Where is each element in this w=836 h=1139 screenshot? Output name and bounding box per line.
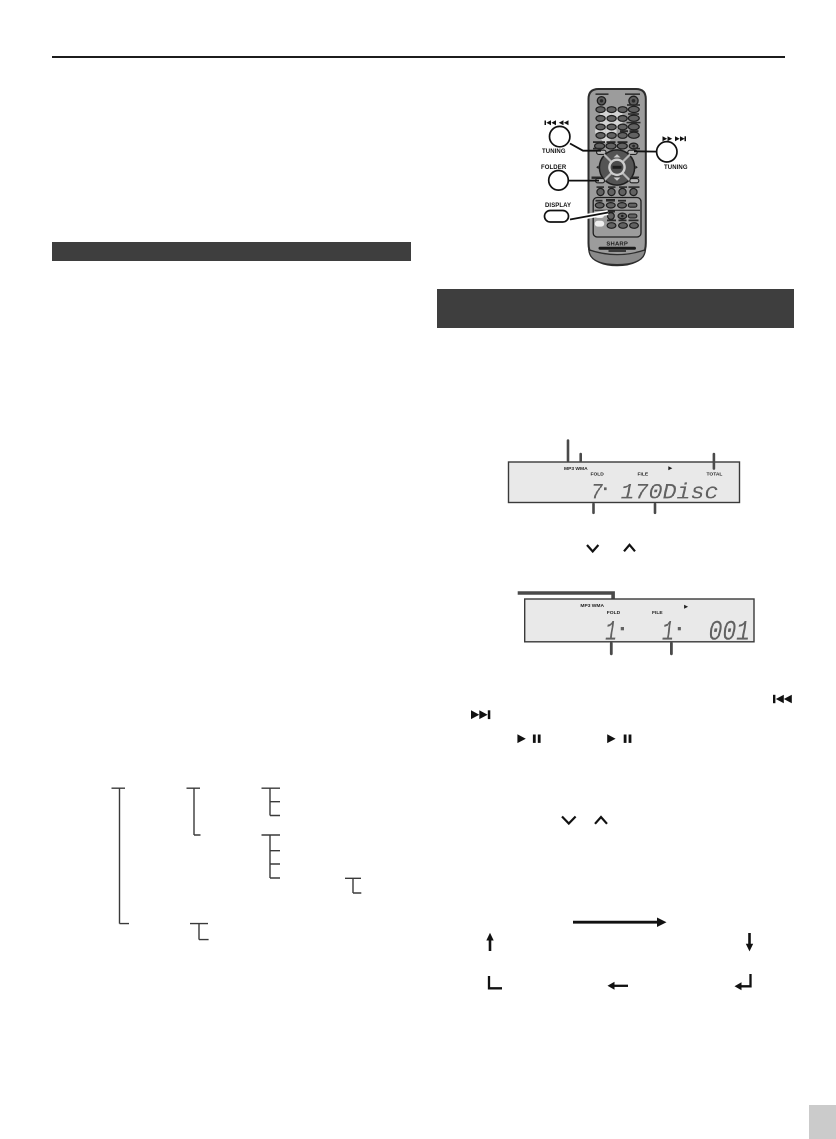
svg-text:SHARP: SHARP — [606, 242, 628, 248]
svg-text:FILE: FILE — [638, 471, 649, 477]
svg-text:7: 7 — [591, 480, 604, 505]
svg-text:MP3 WMA: MP3 WMA — [564, 466, 588, 472]
svg-text:DISPLAY: DISPLAY — [545, 203, 571, 209]
svg-text:TOTAL: TOTAL — [707, 471, 723, 477]
svg-text:TUNING: TUNING — [542, 149, 566, 155]
svg-text:FOLD: FOLD — [591, 471, 605, 477]
svg-text:FOLDER: FOLDER — [541, 165, 567, 171]
svg-text:170Disc: 170Disc — [621, 480, 719, 505]
svg-text:TUNING: TUNING — [664, 165, 688, 171]
